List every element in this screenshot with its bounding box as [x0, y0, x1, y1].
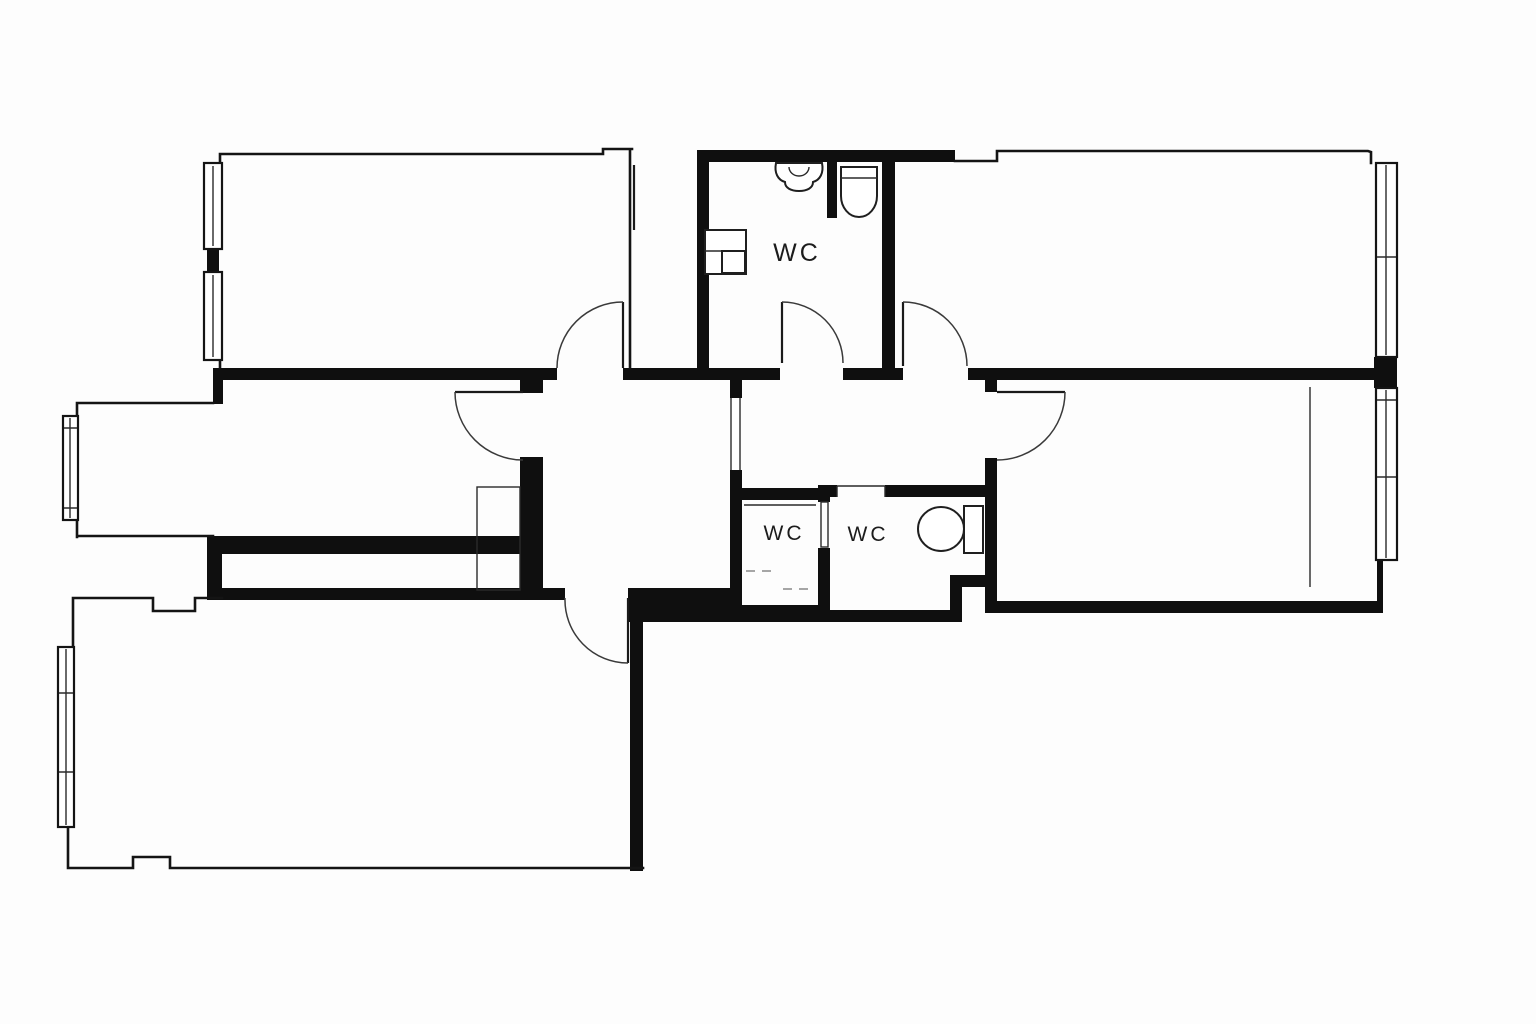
wc-small-door-leaf: [821, 502, 828, 547]
room-bottom-left-outline: [68, 598, 643, 868]
wc-large-opening: [837, 486, 885, 497]
room-top-left-outline: [220, 149, 632, 368]
door-bathroom-top: [782, 302, 843, 363]
wc-small-dashed-marks: [746, 571, 814, 589]
window-top-left-1: [204, 163, 222, 249]
floor-plan-page: WC WC WC: [0, 0, 1536, 1024]
washer-counter-icon: [705, 230, 746, 274]
toilet-icon-top: [841, 167, 877, 217]
wc-small-label: WC: [764, 522, 805, 545]
window-middle-right: [1376, 388, 1397, 560]
door-middle-right-room: [997, 392, 1065, 460]
room-middle-left-outline: [77, 403, 213, 537]
window-top-left-2: [204, 272, 222, 360]
toilet-icon-bottom: [918, 506, 983, 553]
sink-icon: [775, 163, 822, 191]
door-top-right-room: [903, 302, 967, 366]
door-top-left-room: [557, 302, 623, 368]
room-top-right-outline: [955, 151, 1371, 163]
wc-large-label: WC: [848, 523, 889, 546]
window-bottom-left: [58, 647, 74, 827]
door-middle-left-room: [455, 392, 523, 460]
door-bottom-left-room: [565, 598, 628, 663]
hall-passage-opening: [731, 398, 740, 470]
window-top-right: [1376, 163, 1397, 357]
wc-top-label: WC: [773, 239, 821, 267]
window-middle-left: [63, 416, 78, 520]
floor-plan-drawing: WC WC WC: [0, 0, 1536, 1024]
